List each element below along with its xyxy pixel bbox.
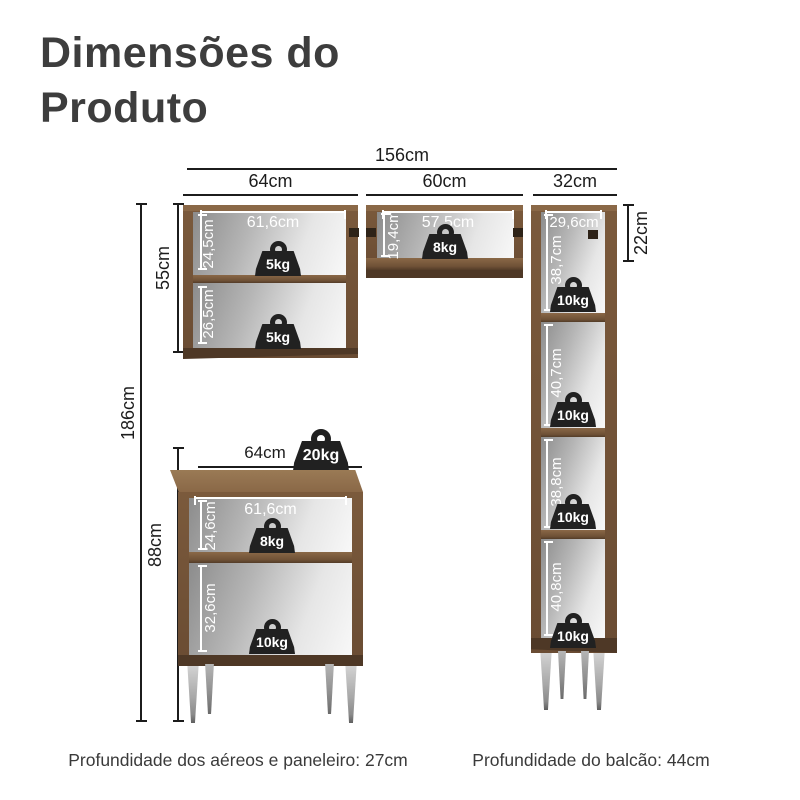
cabinet-leg xyxy=(204,664,215,714)
cabinet-bracket-notch xyxy=(513,228,523,237)
kettlebell-weight-icon: 10kg xyxy=(550,277,596,312)
depth-note-base-cabinet: Profundidade do balcão: 44cm xyxy=(441,750,741,771)
dim-line-right-width xyxy=(533,194,617,196)
kettlebell-weight-icon: 10kg xyxy=(550,613,596,648)
inner-dim-line-tc-width xyxy=(545,211,602,213)
weight-capacity-label: 8kg xyxy=(422,234,468,259)
tall-cabinet-shelf xyxy=(541,313,605,322)
weight-capacity-label: 10kg xyxy=(550,287,596,312)
weight-capacity-label: 20kg xyxy=(293,441,349,471)
dim-label-right-width: 32cm xyxy=(533,171,617,192)
weight-capacity-label: 10kg xyxy=(249,629,295,654)
weight-capacity-label: 8kg xyxy=(249,528,295,553)
dim-label-upper-height: 55cm xyxy=(154,228,172,308)
dim-line-top-right-height xyxy=(627,204,629,262)
kettlebell-weight-icon: 10kg xyxy=(550,392,596,427)
dim-label-left-width: 64cm xyxy=(183,171,358,192)
dim-label-total-width: 156cm xyxy=(187,145,617,166)
dim-line-left-width xyxy=(183,194,358,196)
kettlebell-weight-icon: 8kg xyxy=(249,518,295,553)
weight-capacity-label: 10kg xyxy=(550,623,596,648)
kettlebell-weight-icon: 8kg xyxy=(422,224,468,259)
weight-capacity-label: 10kg xyxy=(550,402,596,427)
page-title-line2: Produto xyxy=(40,81,340,136)
inner-dim-label-bc-shelf1: 24,6cm xyxy=(203,486,219,566)
diagram-canvas: Dimensões do Produto 156cm 64cm 60cm 32c… xyxy=(0,0,800,800)
cabinet-leg xyxy=(557,651,567,699)
tall-cabinet-shelf xyxy=(541,530,605,539)
kettlebell-weight-icon: 20kg xyxy=(293,429,349,471)
cabinet-leg xyxy=(580,651,590,699)
dim-label-middle-width: 60cm xyxy=(366,171,523,192)
inner-dim-label-ul-shelf1: 24,5cm xyxy=(201,204,217,284)
page-title-line1: Dimensões do xyxy=(40,26,340,81)
cabinet-bracket-notch xyxy=(349,228,359,237)
inner-dim-label-um-height: 19,4cm xyxy=(386,195,402,275)
dim-line-total-height xyxy=(140,203,142,722)
page-title: Dimensões do Produto xyxy=(40,26,340,136)
kettlebell-weight-icon: 5kg xyxy=(255,241,301,276)
cabinet-bracket-notch xyxy=(366,228,376,237)
kettlebell-weight-icon: 5kg xyxy=(255,314,301,349)
cabinet-bracket-notch xyxy=(588,230,598,239)
tall-cabinet-shelf xyxy=(541,428,605,437)
cabinet-leg xyxy=(592,653,606,710)
dim-label-base-height: 88cm xyxy=(146,505,164,585)
dim-label-top-right-height: 22cm xyxy=(632,193,650,273)
dim-line-total-width xyxy=(187,168,617,170)
cabinet-leg xyxy=(186,666,200,723)
depth-note-upper-cabinets: Profundidade dos aéreos e paneleiro: 27c… xyxy=(38,750,438,771)
cabinet-leg xyxy=(539,653,553,710)
kettlebell-weight-icon: 10kg xyxy=(550,494,596,529)
kettlebell-weight-icon: 10kg xyxy=(249,619,295,654)
weight-capacity-label: 10kg xyxy=(550,504,596,529)
inner-dim-line-ul-width xyxy=(200,211,346,213)
base-cabinet-countertop xyxy=(170,470,363,492)
dim-label-total-height: 186cm xyxy=(119,373,137,453)
inner-dim-label-ul-width: 61,6cm xyxy=(200,214,346,232)
inner-dim-label-ul-shelf2: 26,5cm xyxy=(201,274,217,354)
cabinet-leg xyxy=(344,666,358,723)
cabinet-leg xyxy=(324,664,335,714)
weight-capacity-label: 5kg xyxy=(255,324,301,349)
weight-capacity-label: 5kg xyxy=(255,251,301,276)
dim-line-upper-height xyxy=(177,203,179,353)
inner-dim-label-bc-shelf2: 32,6cm xyxy=(203,568,219,648)
